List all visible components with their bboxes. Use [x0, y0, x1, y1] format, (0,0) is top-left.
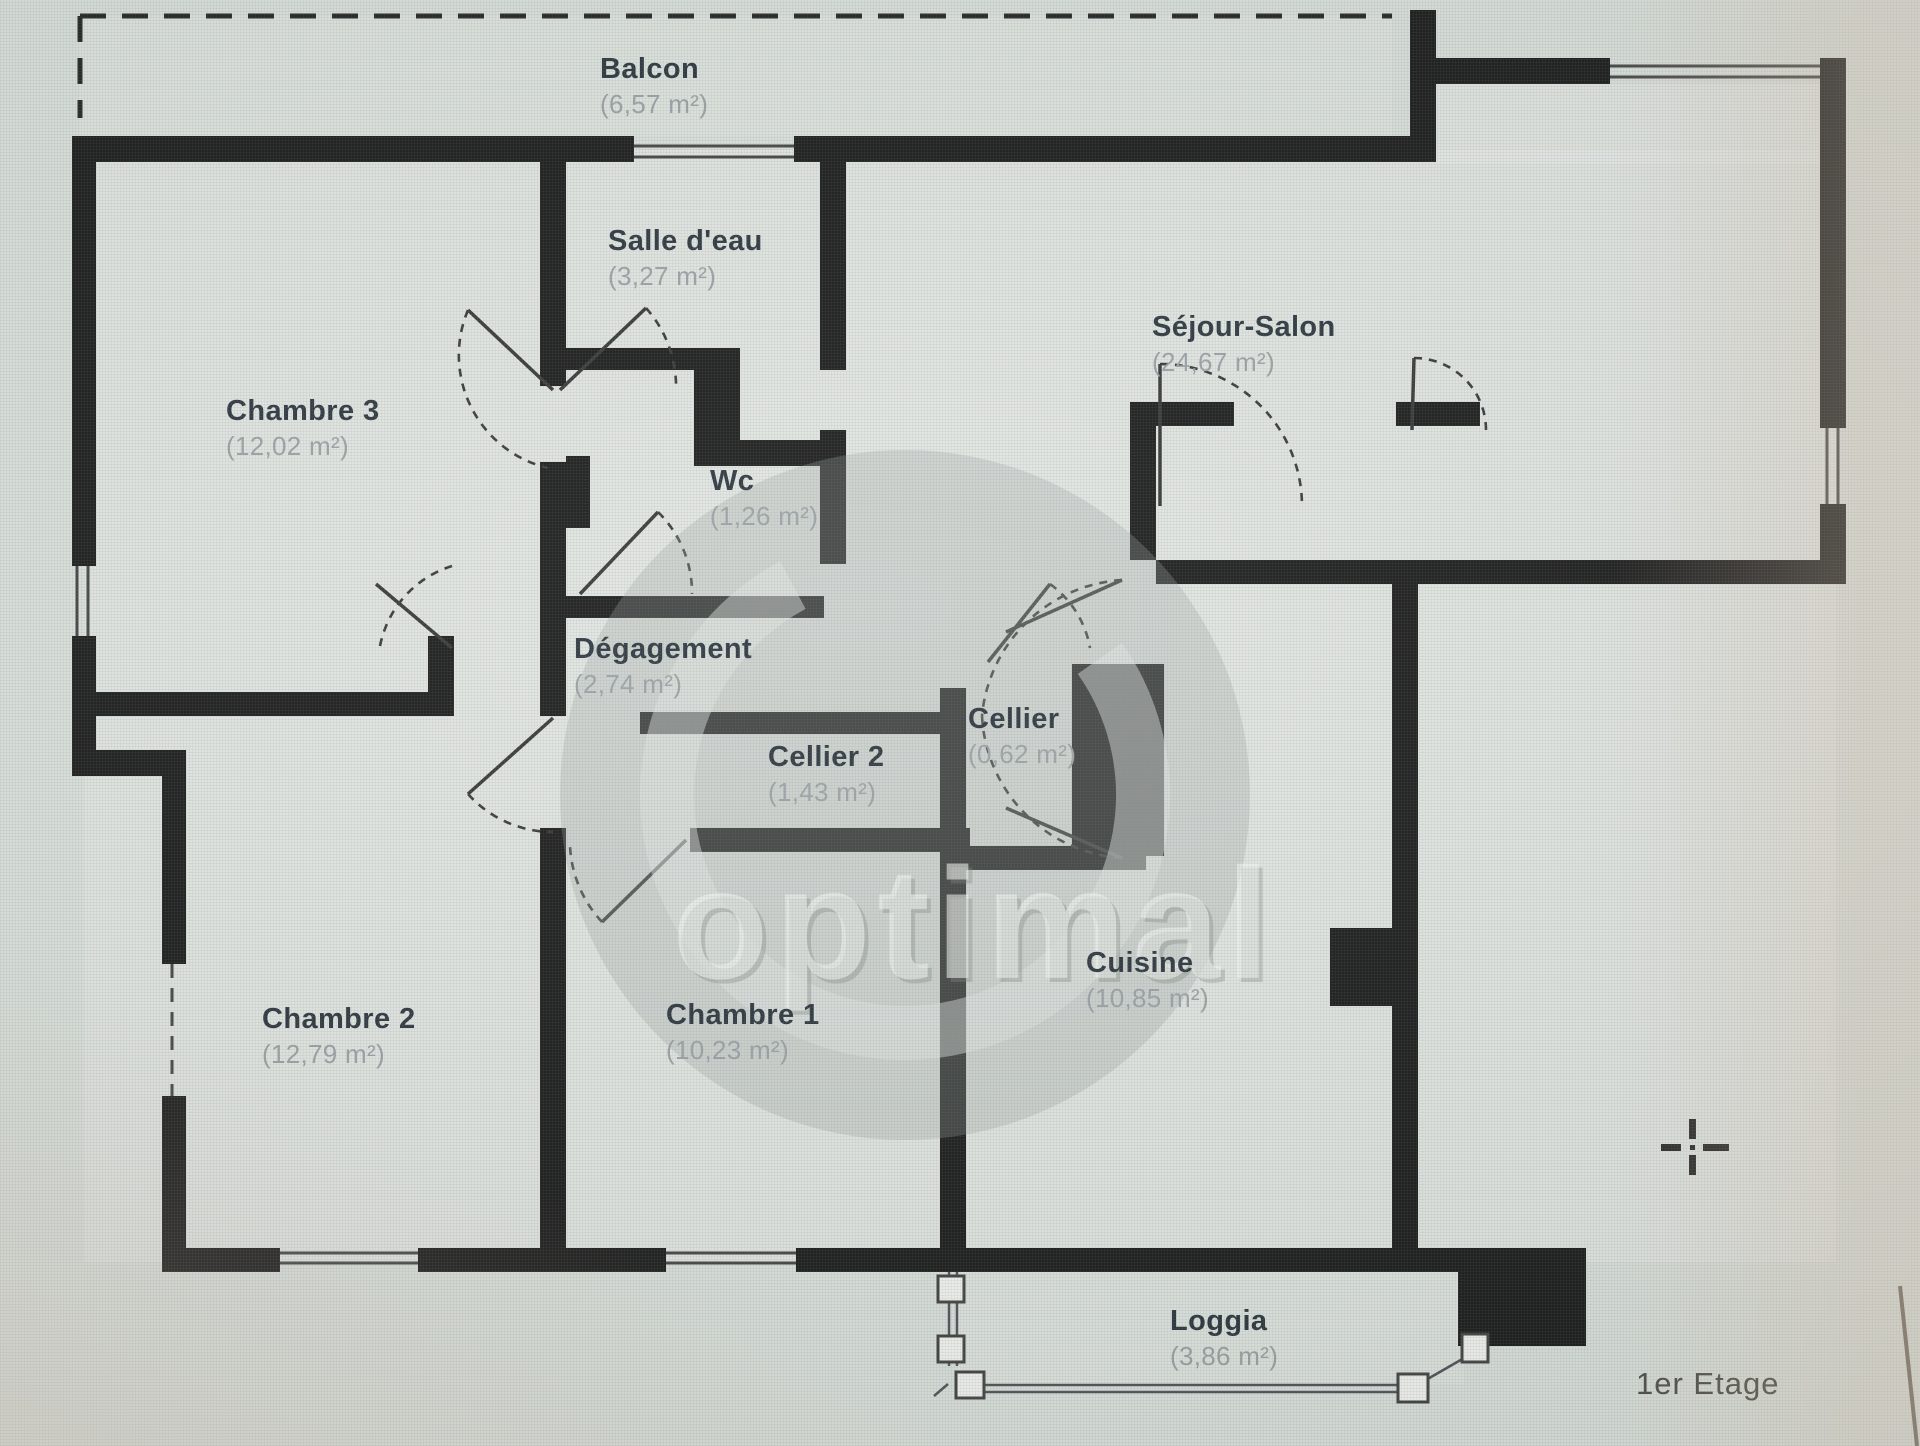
selection-handle: [1462, 1334, 1488, 1362]
room-label-cellier: Cellier(0,62 m²): [968, 704, 1076, 769]
room-label-chambre-2: Chambre 2(12,79 m²): [262, 1004, 416, 1069]
room-label-wc: Wc(1,26 m²): [710, 466, 818, 531]
selection-handle: [938, 1336, 964, 1362]
room-label-chambre-3: Chambre 3(12,02 m²): [226, 396, 380, 461]
room-label-sejour-salon: Séjour-Salon(24,67 m²): [1152, 312, 1336, 377]
selection-handle: [1398, 1374, 1428, 1402]
room-label-degagement: Dégagement(2,74 m²): [574, 634, 752, 699]
room-label-cuisine: Cuisine(10,85 m²): [1086, 948, 1209, 1013]
room-label-salle-deau: Salle d'eau(3,27 m²): [608, 226, 763, 291]
floor-title: 1er Etage: [1636, 1366, 1779, 1402]
room-label-cellier-2: Cellier 2(1,43 m²): [768, 742, 884, 807]
selection-handle: [956, 1372, 984, 1398]
room-label-balcon: Balcon(6,57 m²): [600, 54, 708, 119]
floor-plan-screen: optimal optimal Balcon(6: [0, 0, 1920, 1446]
floor-plan-drawing: optimal optimal: [0, 0, 1920, 1446]
room-label-loggia: Loggia(3,86 m²): [1170, 1306, 1278, 1371]
screen-edge-line: [1900, 1286, 1917, 1446]
room-label-chambre-1: Chambre 1(10,23 m²): [666, 1000, 820, 1065]
selection-handle: [938, 1276, 964, 1302]
